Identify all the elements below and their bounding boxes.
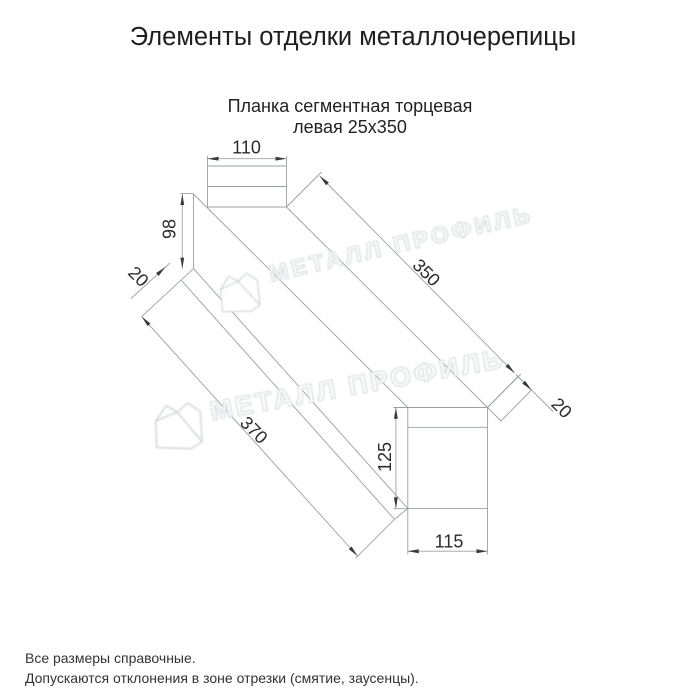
svg-text:МЕТАЛЛ ПРОФИЛЬ: МЕТАЛЛ ПРОФИЛЬ [266, 201, 532, 286]
svg-text:20: 20 [124, 262, 152, 290]
svg-text:110: 110 [232, 137, 261, 157]
svg-text:115: 115 [435, 531, 464, 551]
svg-text:20: 20 [547, 394, 575, 422]
svg-text:98: 98 [159, 219, 179, 239]
svg-text:350: 350 [409, 255, 444, 290]
svg-text:125: 125 [375, 442, 395, 472]
